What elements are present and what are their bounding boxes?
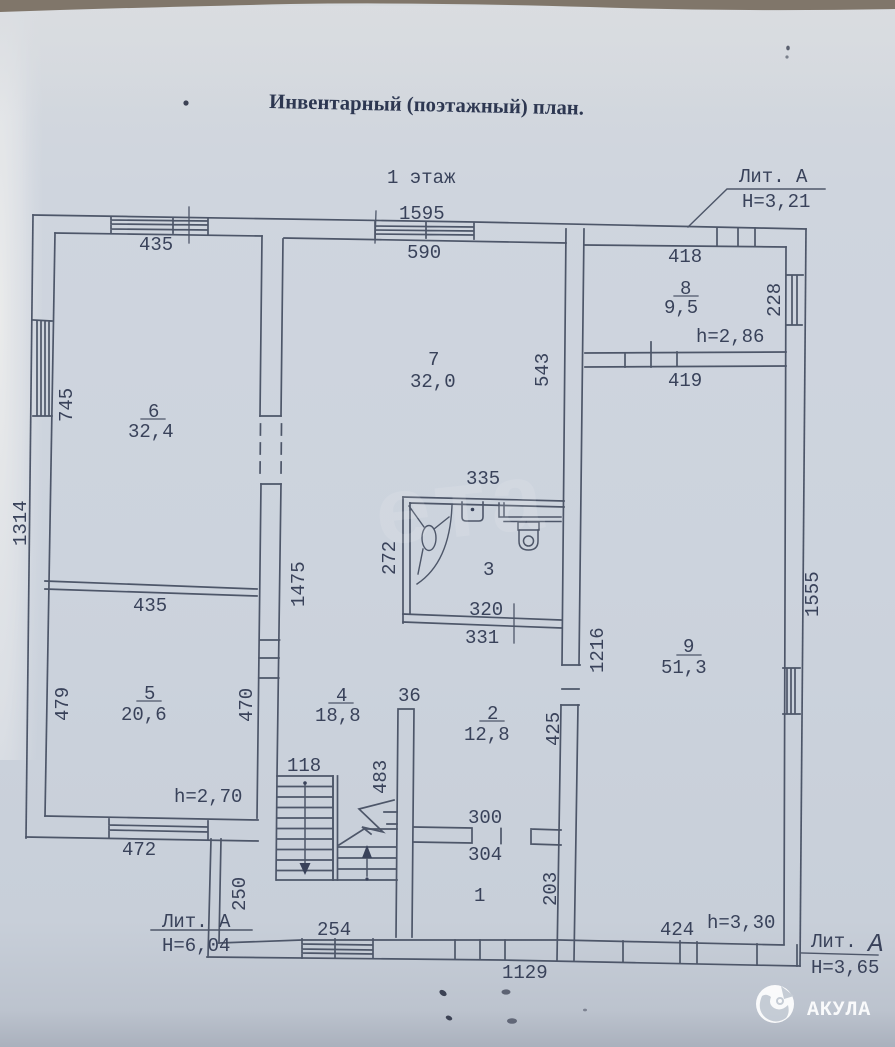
svg-text:9,5: 9,5 bbox=[664, 297, 698, 319]
svg-text:АКУЛА: АКУЛА bbox=[807, 999, 871, 1022]
svg-text:435: 435 bbox=[133, 595, 167, 617]
svg-text:304: 304 bbox=[468, 844, 502, 866]
svg-text:254: 254 bbox=[317, 919, 351, 941]
svg-text:Н=6,04: Н=6,04 bbox=[162, 935, 230, 957]
svg-text:32,0: 32,0 bbox=[410, 371, 456, 393]
svg-text:228: 228 bbox=[764, 283, 786, 317]
svg-text:4: 4 bbox=[336, 685, 347, 707]
svg-text:1129: 1129 bbox=[502, 962, 548, 984]
svg-text:18,8: 18,8 bbox=[315, 705, 361, 727]
svg-text:36: 36 bbox=[398, 685, 421, 707]
svg-text:543: 543 bbox=[532, 353, 554, 387]
svg-text:1314: 1314 bbox=[10, 500, 32, 546]
svg-text:Н=3,65: Н=3,65 bbox=[811, 957, 879, 979]
svg-text:ета: ета bbox=[370, 449, 551, 574]
svg-text:Лит. А: Лит. А bbox=[738, 166, 808, 188]
svg-text:h=2,86: h=2,86 bbox=[696, 326, 764, 348]
svg-text:300: 300 bbox=[468, 807, 502, 829]
svg-text:1595: 1595 bbox=[399, 203, 445, 225]
svg-text:2: 2 bbox=[487, 703, 498, 725]
svg-text:203: 203 bbox=[540, 872, 562, 906]
svg-text:472: 472 bbox=[122, 839, 156, 861]
svg-text:424: 424 bbox=[660, 919, 694, 941]
svg-text:435: 435 bbox=[139, 234, 173, 256]
svg-text:320: 320 bbox=[469, 599, 503, 621]
svg-text:425: 425 bbox=[543, 712, 565, 746]
svg-text:745: 745 bbox=[56, 388, 78, 422]
svg-text:470: 470 bbox=[236, 688, 258, 722]
svg-text:32,4: 32,4 bbox=[128, 421, 174, 443]
svg-text:418: 418 bbox=[668, 246, 702, 268]
svg-text:1216: 1216 bbox=[587, 627, 609, 673]
svg-text:1: 1 bbox=[474, 885, 485, 907]
svg-text:590: 590 bbox=[407, 242, 441, 264]
svg-text:Н=3,21: Н=3,21 bbox=[742, 191, 810, 213]
svg-text:А: А bbox=[866, 929, 884, 959]
svg-text:h=3,30: h=3,30 bbox=[707, 912, 775, 934]
svg-text:20,6: 20,6 bbox=[121, 704, 167, 726]
svg-text:51,3: 51,3 bbox=[661, 657, 707, 679]
svg-text:479: 479 bbox=[52, 687, 74, 721]
svg-text:1555: 1555 bbox=[802, 571, 824, 617]
svg-text:Лит. А: Лит. А bbox=[161, 911, 231, 933]
svg-text:1 этаж: 1 этаж bbox=[387, 167, 456, 189]
svg-text:1475: 1475 bbox=[288, 561, 310, 607]
svg-text:7: 7 bbox=[428, 349, 439, 371]
svg-text:118: 118 bbox=[287, 755, 321, 777]
svg-text:419: 419 bbox=[668, 370, 702, 392]
svg-text:Лит.: Лит. bbox=[810, 931, 857, 953]
svg-text:483: 483 bbox=[370, 760, 392, 794]
svg-text:6: 6 bbox=[148, 401, 159, 423]
svg-text:250: 250 bbox=[229, 877, 251, 911]
svg-text:9: 9 bbox=[683, 636, 694, 658]
svg-text:12,8: 12,8 bbox=[464, 724, 510, 746]
svg-text:5: 5 bbox=[144, 683, 155, 705]
svg-text:h=2,70: h=2,70 bbox=[174, 786, 242, 808]
svg-text:331: 331 bbox=[465, 627, 499, 649]
